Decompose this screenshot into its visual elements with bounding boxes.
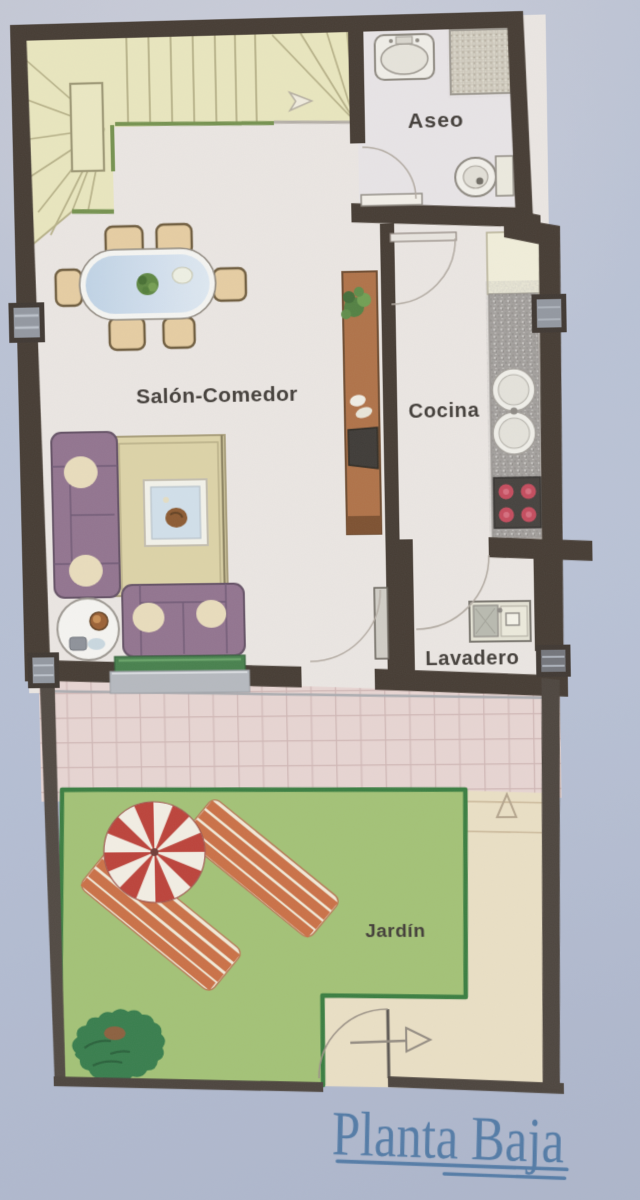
svg-text:Lavadero: Lavadero <box>425 647 519 670</box>
svg-text:Aseo: Aseo <box>408 108 465 133</box>
svg-text:Jardín: Jardín <box>365 921 425 942</box>
svg-text:Salón-Comedor: Salón-Comedor <box>136 383 298 409</box>
svg-text:Cocina: Cocina <box>408 400 480 423</box>
